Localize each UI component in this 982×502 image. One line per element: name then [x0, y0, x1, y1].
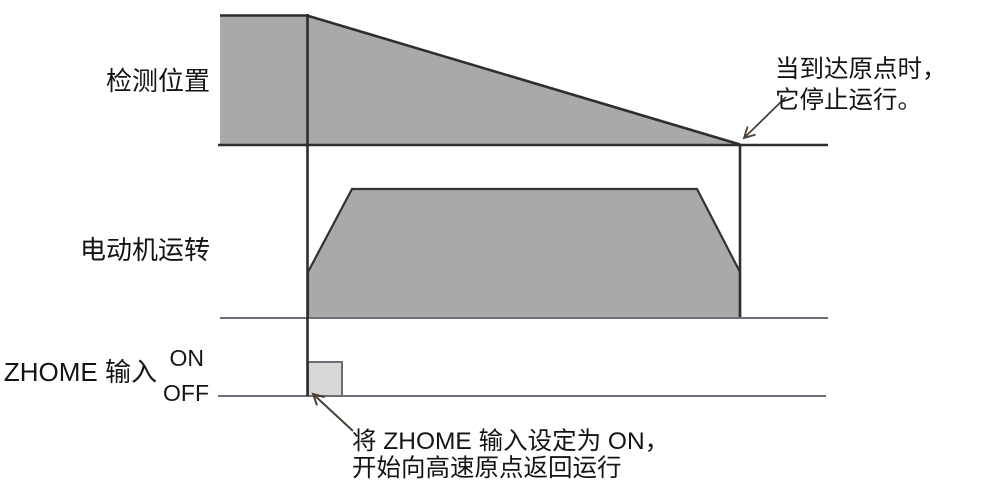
stop-annotation-line1: 当到达原点时， [775, 55, 947, 83]
motor-operation-label: 电动机运转 [80, 235, 210, 265]
timing-diagram: 检测位置 电动机运转 ZHOME 输入 ON OFF 当到达原点时， 它停止运行… [0, 0, 982, 502]
stop-annotation-line2: 它停止运行。 [775, 86, 922, 114]
start-annotation-line1: 将 ZHOME 输入设定为 ON， [352, 427, 669, 455]
motor-operation-waveform [308, 189, 740, 317]
zhome-pulse [308, 362, 342, 395]
start-annotation-arrow [313, 394, 353, 431]
zhome-on-label: ON [170, 345, 205, 371]
detection-position-label: 检测位置 [106, 66, 210, 96]
start-annotation-line2: 开始向高速原点返回运行 [352, 454, 622, 482]
detection-position-waveform [220, 16, 740, 145]
zhome-off-label: OFF [163, 380, 209, 406]
zhome-input-label: ZHOME 输入 [4, 357, 157, 387]
timing-diagram-canvas: 检测位置 电动机运转 ZHOME 输入 ON OFF 当到达原点时， 它停止运行… [0, 0, 982, 502]
